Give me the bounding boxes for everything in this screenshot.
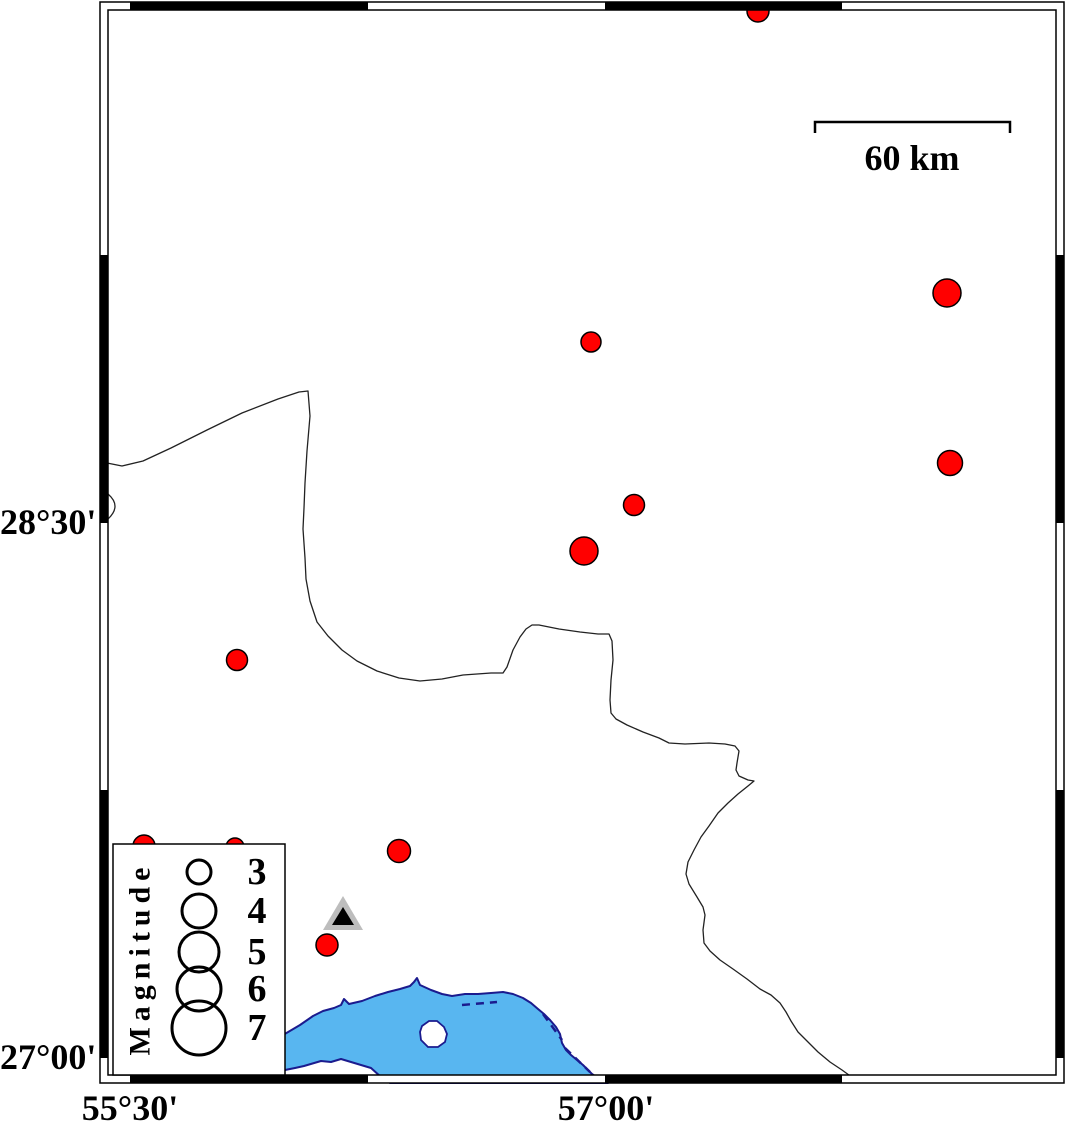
legend-magnitude-5: 5	[248, 931, 267, 973]
earthquake-marker	[624, 495, 645, 516]
frame-segment	[100, 255, 108, 523]
earthquake-marker	[933, 279, 961, 307]
legend-magnitude-6: 6	[248, 968, 267, 1010]
frame-segment	[1056, 255, 1064, 523]
earthquake-marker	[227, 650, 248, 671]
frame-segment	[1056, 790, 1064, 1058]
frame-segment	[100, 790, 108, 1058]
frame-segment	[605, 2, 842, 10]
lat-label-27-00: 27°00'	[0, 1039, 92, 1075]
legend-magnitude-3: 3	[248, 851, 267, 893]
frame-segment	[130, 2, 368, 10]
seismicity-map: Magnitude3456760 km	[0, 0, 1066, 1129]
scale-bar	[815, 122, 1010, 133]
earthquake-marker	[316, 934, 338, 956]
earthquake-marker	[581, 332, 601, 352]
lon-label-55-30: 55°30'	[30, 1090, 230, 1126]
coast-hook-line	[108, 494, 115, 519]
legend-title: Magnitude	[124, 861, 157, 1055]
legend-magnitude-4: 4	[248, 890, 267, 932]
lat-label-28-30: 28°30'	[0, 504, 92, 540]
earthquake-marker	[938, 451, 963, 476]
frame-segment	[130, 1075, 368, 1083]
seismicity-map-page: Magnitude3456760 km 28°30' 27°00' 55°30'…	[0, 0, 1066, 1129]
earthquake-marker	[570, 537, 598, 565]
frame-segment	[605, 1075, 842, 1083]
legend-magnitude-7: 7	[248, 1007, 267, 1049]
earthquake-marker	[388, 840, 411, 863]
lon-label-57-00: 57°00'	[506, 1090, 706, 1126]
scale-bar-label: 60 km	[864, 138, 959, 178]
